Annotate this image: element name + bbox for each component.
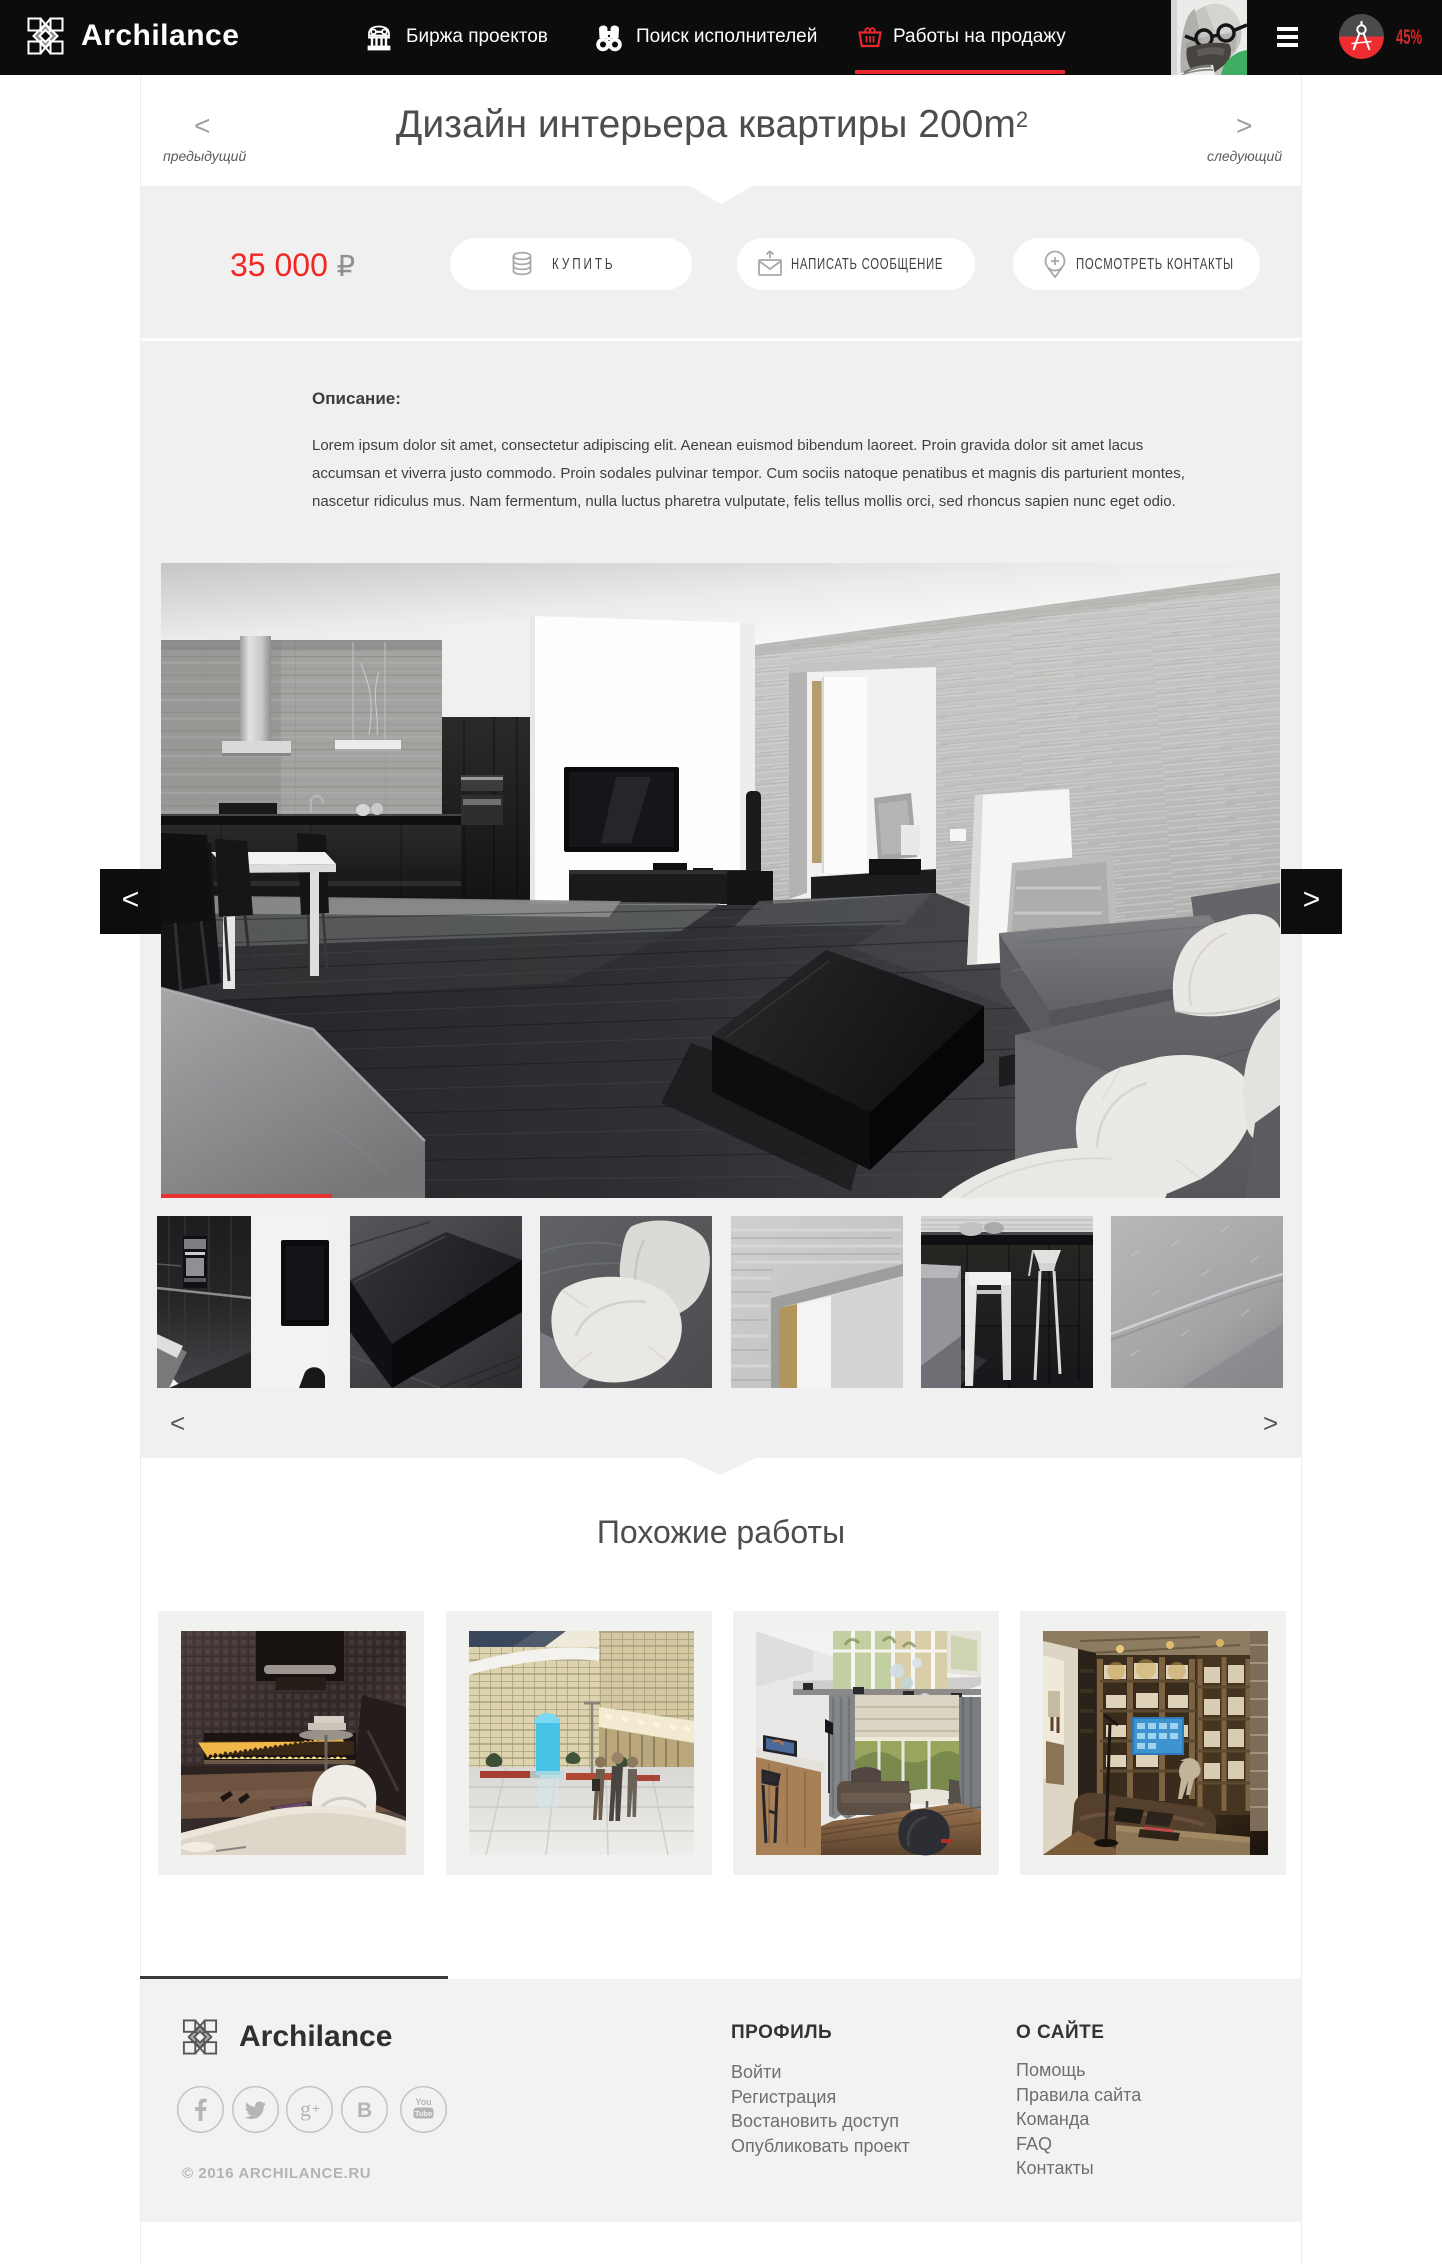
- svg-text:+: +: [312, 2100, 320, 2116]
- svg-text:B: B: [357, 2099, 372, 2122]
- svg-text:Tube: Tube: [415, 2109, 432, 2118]
- svg-text:You: You: [415, 2097, 431, 2107]
- svg-text:g: g: [300, 2096, 311, 2121]
